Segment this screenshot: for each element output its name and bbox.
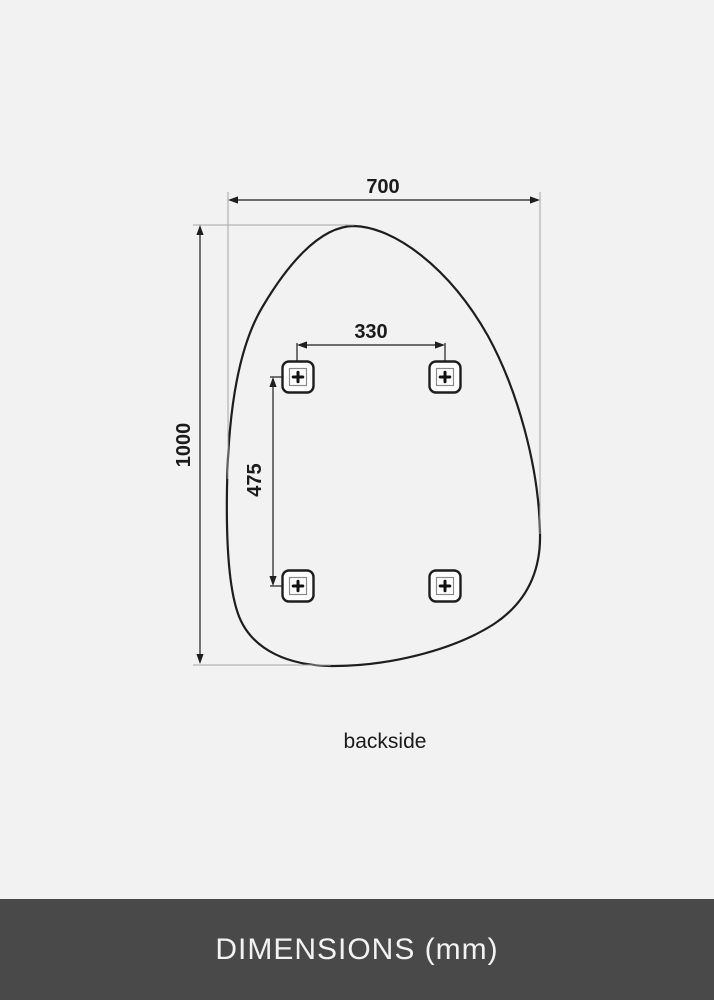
dimension-hole-spacing-horizontal: 330 — [297, 321, 445, 361]
arrow-up-icon — [269, 377, 276, 387]
dimension-hole-spacing-vertical: 475 — [244, 377, 282, 586]
arrow-up-icon — [196, 225, 203, 235]
dimension-height: 1000 — [173, 225, 204, 664]
mounting-bracket-bottom-right — [430, 571, 461, 602]
arrow-left-icon — [228, 196, 238, 203]
dimension-label-width: 700 — [366, 176, 399, 198]
dimension-label-height: 1000 — [173, 423, 195, 468]
dimension-label-hole-spacing-vertical: 475 — [244, 463, 266, 496]
arrow-down-icon — [196, 654, 203, 664]
dimension-width: 700 — [228, 176, 540, 204]
arrow-right-icon — [435, 341, 445, 348]
dimension-diagram-page: 700 1000 330 — [0, 0, 714, 1000]
mounting-bracket-bottom-left — [283, 571, 314, 602]
extension-lines — [193, 192, 540, 665]
arrow-right-icon — [530, 196, 540, 203]
mirror-outline — [227, 226, 540, 666]
footer-title: DIMENSIONS (mm) — [215, 933, 498, 967]
dimension-label-hole-spacing-horizontal: 330 — [354, 321, 387, 343]
arrow-left-icon — [297, 341, 307, 348]
mounting-bracket-top-left — [283, 362, 314, 393]
view-label: backside — [344, 730, 427, 753]
mounting-bracket-top-right — [430, 362, 461, 393]
drawing-area: 700 1000 330 — [0, 0, 714, 899]
footer-bar: DIMENSIONS (mm) — [0, 899, 714, 1000]
arrow-down-icon — [269, 576, 276, 586]
mirror-dimension-diagram: 700 1000 330 — [0, 0, 714, 899]
